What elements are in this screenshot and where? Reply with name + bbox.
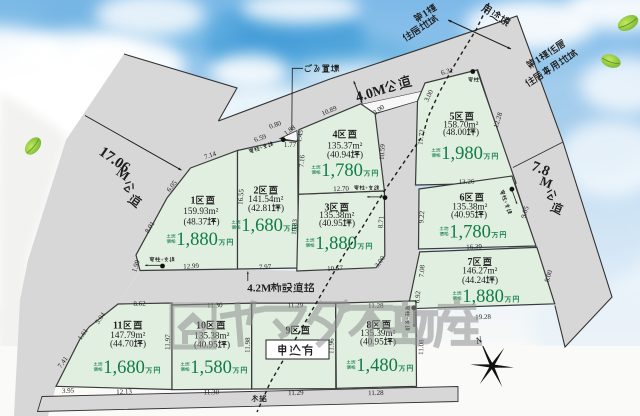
svg-text:10.57: 10.57: [327, 264, 344, 273]
svg-text:13.26: 13.26: [459, 178, 476, 187]
svg-text:11.30: 11.30: [204, 388, 220, 396]
svg-text:(44.24: (44.24: [462, 275, 486, 285]
svg-text:(42.81: (42.81: [248, 203, 272, 213]
svg-text:): ): [352, 218, 355, 228]
svg-text:(40.94: (40.94: [327, 149, 351, 159]
svg-text:12.70: 12.70: [333, 185, 350, 194]
svg-text:7.97: 7.97: [259, 263, 272, 271]
svg-text:): ): [476, 127, 479, 137]
svg-text:1,780: 1,780: [449, 223, 491, 243]
svg-text:9.22: 9.22: [417, 210, 426, 223]
svg-text:11.98: 11.98: [243, 337, 252, 353]
svg-text:4.2M: 4.2M: [247, 282, 272, 294]
svg-text:146.27m²: 146.27m²: [462, 265, 497, 275]
svg-text:11.28: 11.28: [368, 389, 384, 397]
svg-text:7.08: 7.08: [417, 264, 426, 277]
svg-text:1,880: 1,880: [176, 230, 218, 250]
svg-text:): ): [281, 203, 284, 213]
svg-text:1,780: 1,780: [321, 161, 363, 181]
svg-text:8.62: 8.62: [133, 299, 146, 307]
svg-text:): ): [495, 275, 498, 285]
svg-text:4: 4: [333, 130, 338, 141]
svg-text:): ): [227, 339, 230, 349]
svg-text:1,480: 1,480: [356, 356, 398, 376]
svg-text:): ): [143, 338, 146, 348]
svg-text:+: +: [365, 186, 368, 192]
svg-text:11.96: 11.96: [327, 338, 336, 354]
svg-text:(40.95: (40.95: [451, 209, 475, 219]
svg-text:(48.37: (48.37: [184, 216, 208, 226]
svg-text:1,580: 1,580: [190, 358, 232, 378]
svg-text:1,980: 1,980: [441, 144, 483, 164]
svg-text:16.39: 16.39: [466, 243, 483, 252]
svg-text:1,680: 1,680: [241, 216, 283, 236]
svg-text:6.92: 6.92: [413, 290, 422, 303]
svg-text:8.71: 8.71: [376, 215, 385, 228]
svg-text:12.13: 12.13: [116, 388, 133, 397]
svg-text:(48.00: (48.00: [443, 127, 467, 137]
svg-text:): ): [216, 216, 219, 226]
svg-text:11.29: 11.29: [288, 389, 304, 397]
svg-text:159.93m²: 159.93m²: [183, 206, 218, 216]
svg-text:16.55: 16.55: [236, 188, 245, 205]
svg-text:12.99: 12.99: [183, 262, 200, 271]
svg-text:3.95: 3.95: [62, 387, 75, 395]
svg-text:10.59: 10.59: [378, 143, 387, 160]
svg-text:(40.95: (40.95: [319, 218, 343, 228]
svg-text:7.16: 7.16: [297, 154, 306, 167]
svg-text:): ): [360, 149, 363, 159]
svg-text:10.83: 10.83: [290, 218, 299, 235]
svg-text:(44.70: (44.70: [110, 338, 134, 348]
svg-text:1,680: 1,680: [103, 358, 145, 378]
svg-text:): ): [484, 209, 487, 219]
svg-text:+: +: [160, 257, 163, 263]
